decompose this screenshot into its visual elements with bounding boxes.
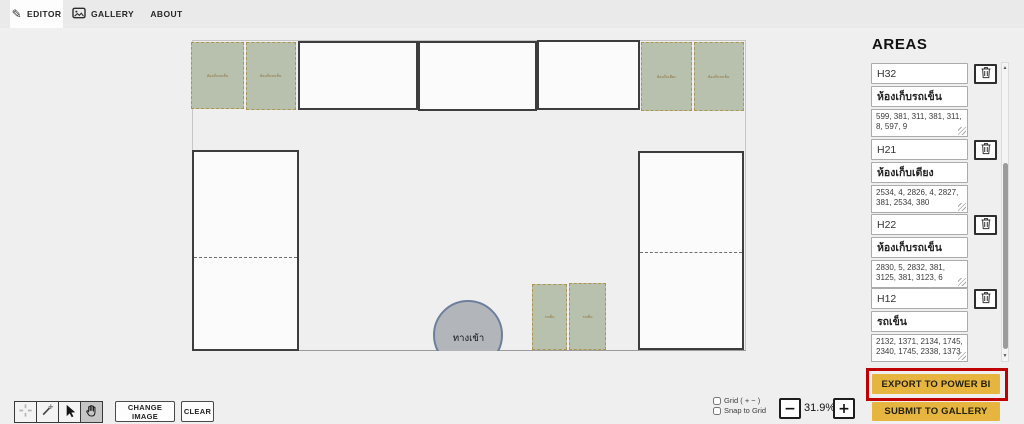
submit-to-gallery-button[interactable]: SUBMIT TO GALLERY <box>872 402 1000 421</box>
area-shape-4[interactable]: ห้องเก็บรถเข็น <box>694 42 744 111</box>
area-shape-5[interactable]: รถเข็น <box>532 284 567 350</box>
hand-icon <box>84 403 99 421</box>
area-name-input-2[interactable] <box>871 162 968 183</box>
room-left-block <box>192 150 299 351</box>
resize-handle-icon[interactable] <box>958 352 966 360</box>
delete-area-button-1[interactable] <box>974 64 997 84</box>
zoom-out-button[interactable]: − <box>779 398 801 419</box>
entrance-shape: ทางเข้า <box>433 300 504 351</box>
delete-area-button-3[interactable] <box>974 215 997 235</box>
area-name-input-1[interactable] <box>871 86 968 107</box>
tab-gallery-label: GALLERY <box>91 9 134 19</box>
magic-wand-icon <box>40 403 55 421</box>
area-coords-wrap-2: 2534, 4, 2826, 4, 2827, 381, 2534, 380 <box>871 185 968 213</box>
room-top-2 <box>418 41 537 111</box>
area-coords-wrap-4: 2132, 1371, 2134, 1745, 2340, 1745, 2338… <box>871 334 968 362</box>
gallery-icon <box>72 7 86 21</box>
export-to-powerbi-button[interactable]: EXPORT TO POWER BI <box>872 374 1000 394</box>
scroll-down-icon[interactable]: ▼ <box>1002 351 1008 361</box>
resize-handle-icon[interactable] <box>958 278 966 286</box>
area-coords-input-4[interactable]: 2132, 1371, 2134, 1745, 2340, 1745, 2338… <box>872 335 967 361</box>
magic-wand-tool-button[interactable] <box>36 401 59 423</box>
area-shape-1[interactable]: ห้องเก็บรถเข็น <box>191 42 244 109</box>
area-coords-input-3[interactable]: 2830, 5, 2832, 381, 3125, 381, 3123, 6 <box>872 261 967 287</box>
areas-scrollbar[interactable]: ▲ ▼ <box>1001 62 1009 362</box>
area-name-input-3[interactable] <box>871 237 968 258</box>
pencil-icon: ✎ <box>12 8 22 20</box>
area-id-input-1[interactable] <box>871 63 968 84</box>
delete-area-button-4[interactable] <box>974 289 997 309</box>
room-right-block <box>638 151 744 350</box>
delete-area-button-2[interactable] <box>974 140 997 160</box>
room-left-divider <box>194 257 297 258</box>
trash-icon <box>980 66 992 82</box>
area-id-input-2[interactable] <box>871 139 968 160</box>
trash-icon <box>980 291 992 307</box>
tab-bar: ✎ EDITOR GALLERY ABOUT <box>0 0 1024 28</box>
area-coords-wrap-1: 599, 381, 311, 381, 311, 8, 597, 9 <box>871 109 968 137</box>
scroll-up-icon[interactable]: ▲ <box>1002 63 1008 73</box>
scroll-thumb[interactable] <box>1003 163 1008 349</box>
trash-icon <box>980 217 992 233</box>
zoom-in-button[interactable]: + <box>833 398 855 419</box>
cursor-arrow-icon <box>62 403 77 421</box>
area-id-input-3[interactable] <box>871 214 968 235</box>
room-top-3 <box>537 40 640 110</box>
pan-tool-button[interactable] <box>80 401 103 423</box>
tool-group <box>14 401 103 423</box>
grid-checkbox-row: Grid ( + − ) <box>713 396 760 405</box>
area-shape-4-label: ห้องเก็บรถเข็น <box>708 74 730 80</box>
grid-checkbox[interactable] <box>713 397 721 405</box>
area-shape-2-label: ห้องเก็บรถเข็น <box>260 73 282 79</box>
tab-editor[interactable]: ✎ EDITOR <box>10 0 63 28</box>
plan-right-edge <box>745 40 746 350</box>
clear-button[interactable]: CLEAR <box>181 401 214 422</box>
select-tool-button[interactable] <box>58 401 81 423</box>
area-shape-3-label: ห้องเก็บเตียง <box>657 74 676 80</box>
zoom-level: 31.9% <box>804 402 832 414</box>
tab-about[interactable]: ABOUT <box>144 0 189 28</box>
area-id-input-4[interactable] <box>871 288 968 309</box>
room-right-divider <box>640 252 742 253</box>
crosshair-icon <box>18 403 33 421</box>
snap-checkbox[interactable] <box>713 407 721 415</box>
tab-about-label: ABOUT <box>150 9 182 19</box>
editor-canvas[interactable]: ห้องเก็บรถเข็น ห้องเก็บรถเข็น ห้องเก็บเต… <box>0 28 860 388</box>
entrance-label: ทางเข้า <box>433 331 504 346</box>
snap-label: Snap to Grid <box>724 406 766 415</box>
tab-editor-label: EDITOR <box>27 9 61 19</box>
snap-checkbox-row: Snap to Grid <box>713 406 766 415</box>
area-shape-5-label: รถเข็น <box>545 314 555 320</box>
trash-icon <box>980 142 992 158</box>
resize-handle-icon[interactable] <box>958 127 966 135</box>
area-shape-1-label: ห้องเก็บรถเข็น <box>207 73 229 79</box>
grid-label: Grid ( + − ) <box>724 396 760 405</box>
area-coords-input-1[interactable]: 599, 381, 311, 381, 311, 8, 597, 9 <box>872 110 967 136</box>
area-coords-wrap-3: 2830, 5, 2832, 381, 3125, 381, 3123, 6 <box>871 260 968 288</box>
area-shape-6[interactable]: รถเข็น <box>569 283 606 350</box>
add-point-tool-button[interactable] <box>14 401 37 423</box>
areas-title: AREAS <box>872 36 928 53</box>
area-shape-3[interactable]: ห้องเก็บเตียง <box>641 42 692 111</box>
area-coords-input-2[interactable]: 2534, 4, 2826, 4, 2827, 381, 2534, 380 <box>872 186 967 212</box>
area-shape-2[interactable]: ห้องเก็บรถเข็น <box>246 42 296 110</box>
room-top-1 <box>298 41 418 110</box>
resize-handle-icon[interactable] <box>958 203 966 211</box>
area-name-input-4[interactable] <box>871 311 968 332</box>
tab-gallery[interactable]: GALLERY <box>68 0 138 28</box>
area-shape-6-label: รถเข็น <box>583 314 593 320</box>
change-image-button[interactable]: CHANGE IMAGE <box>115 401 175 422</box>
